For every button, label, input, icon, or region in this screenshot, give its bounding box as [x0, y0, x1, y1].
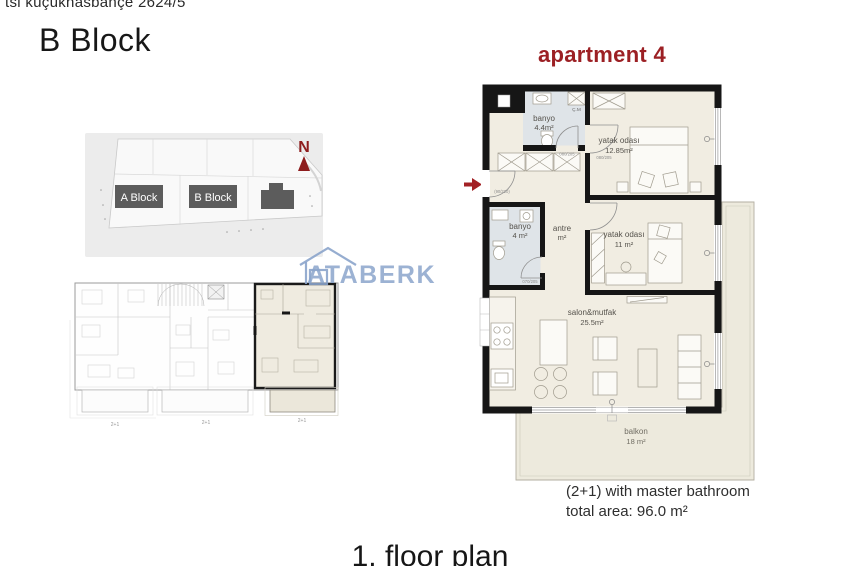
unit-type-label: 2+1 [111, 422, 120, 428]
closet-label: Ç.M [572, 107, 581, 113]
room-label-balkon: balkon [624, 427, 648, 436]
detail-plan-graphic: banyo 4.4m² Ç.M yatak odası 12.85m² bany… [478, 83, 758, 487]
room-label-antre: antre [553, 224, 572, 233]
overview-plan-graphic: 2+1 2+1 2+1 [58, 270, 346, 430]
elevator [208, 285, 224, 299]
summary-line2: total area: 96.0 m² [566, 502, 750, 522]
north-label: N [298, 139, 310, 156]
parcel-outline [109, 139, 322, 228]
room-label-bedroom2: yatak odası [604, 230, 645, 239]
room-area-salon: 25.5m² [580, 318, 604, 327]
highlighted-unit [255, 284, 335, 388]
room-area-bedroom1: 12.85m² [605, 146, 633, 155]
unit-type-label: 2+1 [202, 420, 211, 426]
apartment-title: apartment 4 [538, 42, 666, 68]
room-label-salon: salon&mutfak [568, 308, 617, 317]
apartment-detail-plan: banyo 4.4m² Ç.M yatak odası 12.85m² bany… [478, 83, 758, 487]
apartment-summary: (2+1) with master bathroom total area: 9… [566, 482, 750, 522]
door-label-entrance: (90/220) [494, 189, 510, 194]
block-b-label: B Block [194, 192, 232, 204]
door-label-banyo-small: 080/205 [559, 152, 575, 157]
door-label-bedroom1: 080/205 [596, 155, 612, 160]
site-plan-graphic: A Block B Block N [85, 133, 323, 257]
site-plan: A Block B Block N [85, 133, 323, 257]
room-label-banyo-small: banyo [533, 114, 555, 123]
room-area-balkon: 18 m² [626, 437, 646, 446]
unit-type-label: 2+1 [298, 418, 307, 424]
location-line: tsi küçükhasbahçe 2624/5 [5, 0, 186, 11]
room-label-bedroom1: yatak odası [599, 136, 640, 145]
door-label-banyo-master: 070/205 [522, 279, 538, 284]
floor-plan-sheet: tsi küçükhasbahçe 2624/5 B Block A Block [0, 0, 850, 566]
block-title: B Block [39, 22, 151, 59]
room-area-banyo-small: 4.4m² [534, 123, 554, 132]
room-area-antre: m² [558, 233, 567, 242]
room-area-banyo-master: 4 m² [513, 231, 529, 240]
floor-plan-title: 1. floor plan [280, 540, 580, 566]
block-a-label: A Block [121, 192, 158, 204]
room-area-bedroom2: 11 m² [615, 240, 634, 249]
summary-line1: (2+1) with master bathroom [566, 482, 750, 502]
room-label-banyo-master: banyo [509, 222, 531, 231]
overview-floor-plan: 2+1 2+1 2+1 [58, 270, 346, 430]
